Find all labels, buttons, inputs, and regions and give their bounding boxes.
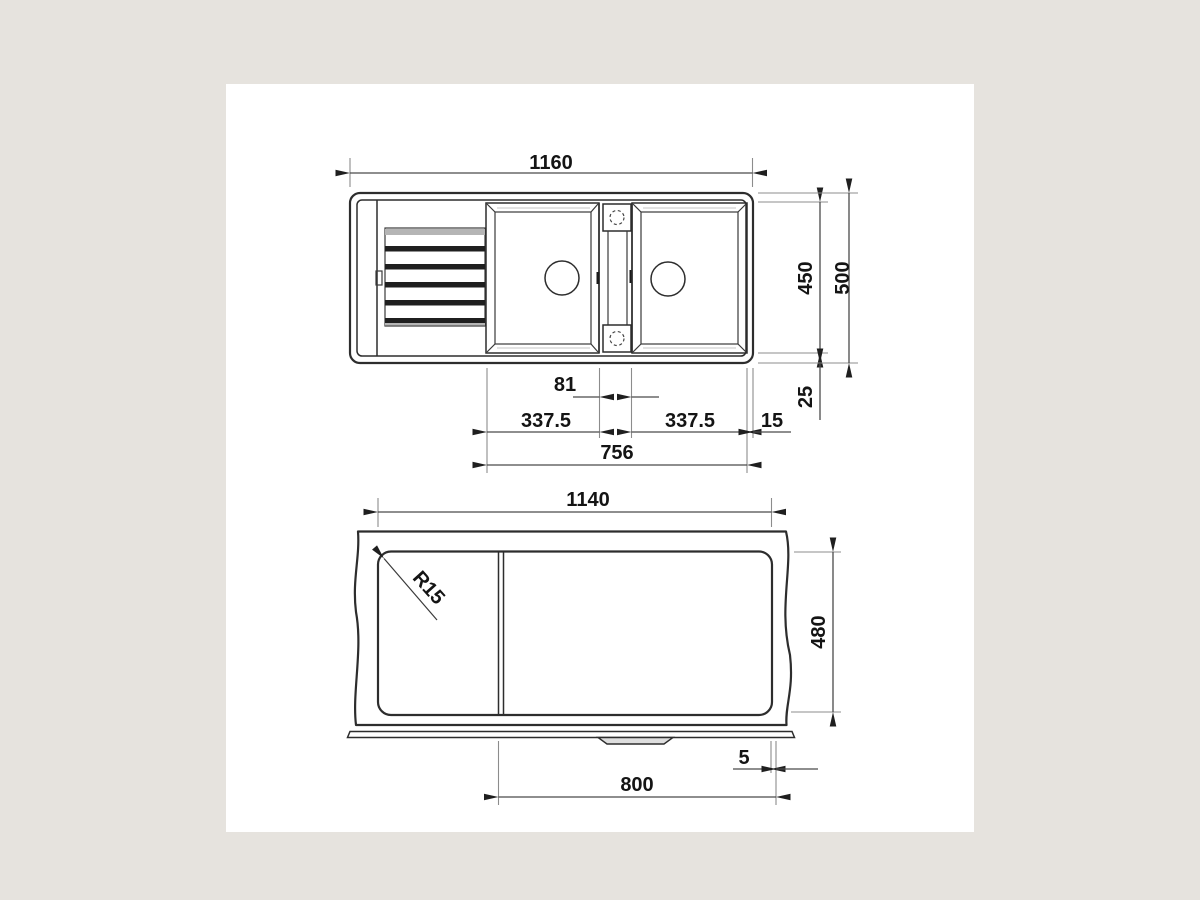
overflow-mark-left	[597, 272, 600, 284]
dim-inner-depth: 450	[795, 261, 817, 294]
dim-cutout-span: 800	[620, 774, 653, 796]
front-lip	[348, 732, 795, 738]
dim-overall-width: 1160	[529, 152, 572, 174]
dim-bowls-span: 756	[600, 442, 633, 464]
dim-cutout-width: 1140	[566, 489, 609, 511]
dim-overall-depth: 500	[832, 261, 854, 294]
dim-divider-width: 81	[554, 374, 576, 396]
screenshot-root: 1160 450 500 25	[0, 0, 1200, 900]
dim-rim-offset: 25	[795, 386, 817, 408]
sink-outline	[350, 193, 753, 363]
drain-outlet	[598, 738, 673, 745]
dim-rim-width: 15	[761, 410, 783, 432]
cutout-view-drawing: R15 1140 480	[348, 489, 842, 805]
dim-right-bowl-width: 337.5	[665, 410, 715, 432]
dim-left-bowl-width: 337.5	[521, 410, 571, 432]
sink-technical-drawing: 1160 450 500 25	[226, 84, 974, 832]
top-view-drawing: 1160 450 500 25	[350, 152, 858, 473]
dim-cutout-depth: 480	[808, 615, 830, 648]
drawing-panel: 1160 450 500 25	[226, 84, 974, 832]
dim-edge-gap: 5	[738, 747, 749, 769]
cutout-rect	[378, 552, 772, 716]
